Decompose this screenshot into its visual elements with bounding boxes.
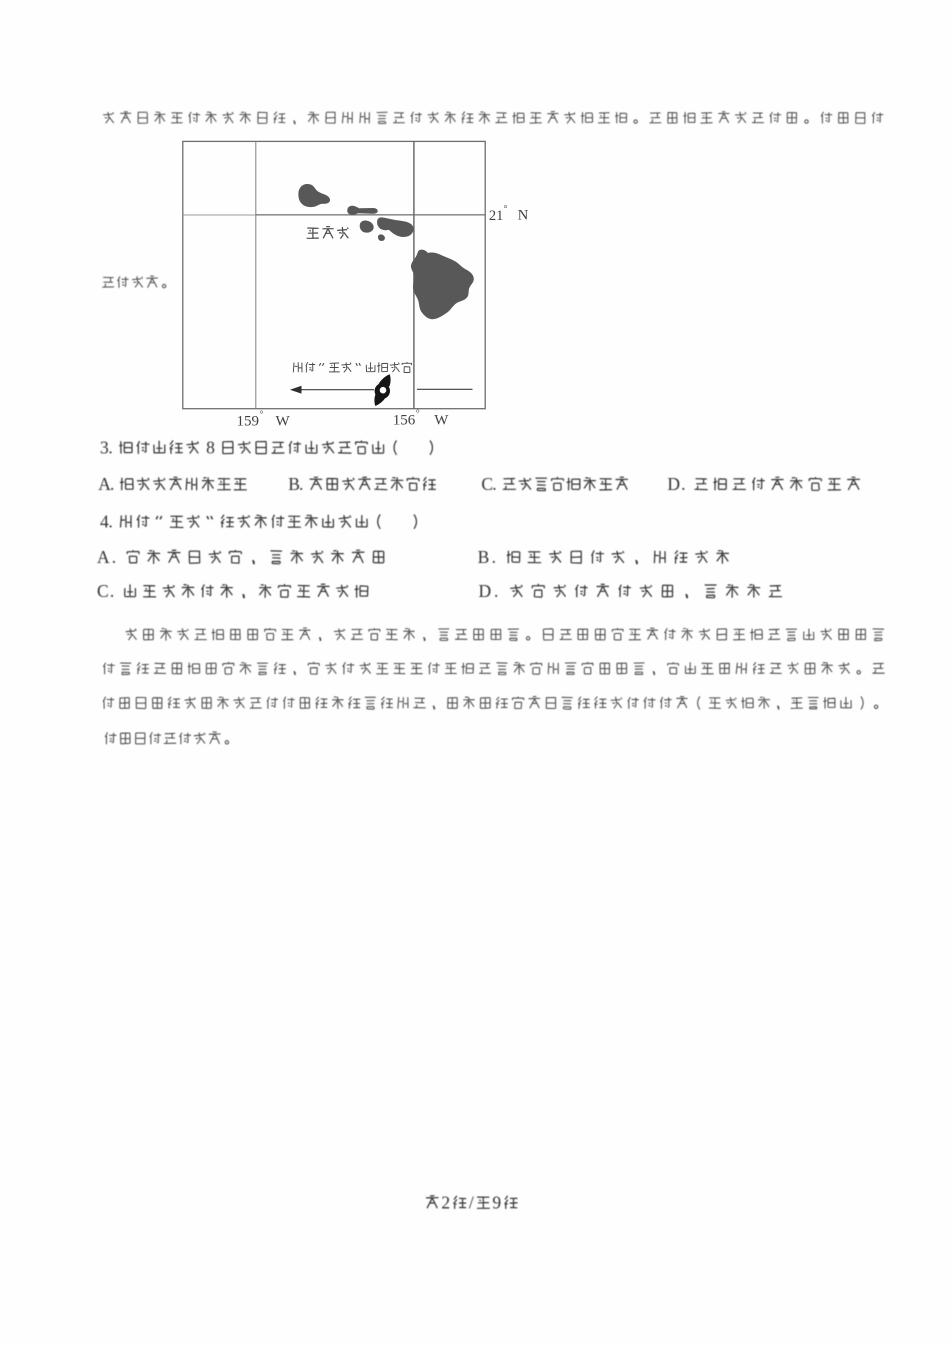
svg-text:.: . (681, 474, 685, 494)
svg-text:.: . (108, 437, 112, 457)
svg-text:°: ° (504, 204, 508, 215)
svg-text:.: . (110, 581, 114, 601)
svg-text:N: N (518, 208, 529, 224)
svg-text:159: 159 (237, 414, 260, 430)
svg-text:.: . (108, 511, 112, 531)
svg-text:9: 9 (492, 1192, 501, 1212)
svg-text:D: D (667, 474, 680, 494)
svg-text:B: B (478, 547, 490, 567)
svg-text:.: . (494, 581, 498, 601)
svg-text:.: . (299, 474, 303, 494)
svg-text:156: 156 (393, 413, 416, 429)
svg-text:.: . (492, 474, 496, 494)
svg-text:D: D (479, 581, 492, 601)
svg-text:8: 8 (206, 437, 215, 457)
svg-text:.: . (112, 547, 116, 567)
svg-text:2: 2 (441, 1192, 450, 1212)
svg-text:/: / (469, 1192, 474, 1212)
svg-text:.: . (110, 474, 114, 494)
svg-text:A: A (97, 547, 110, 567)
svg-text:°: ° (260, 410, 264, 421)
svg-text:°: ° (416, 409, 420, 420)
svg-text:W: W (434, 413, 449, 429)
svg-text:C: C (97, 581, 109, 601)
svg-text:21: 21 (489, 208, 504, 224)
svg-text:.: . (492, 547, 496, 567)
svg-text:W: W (276, 414, 291, 430)
